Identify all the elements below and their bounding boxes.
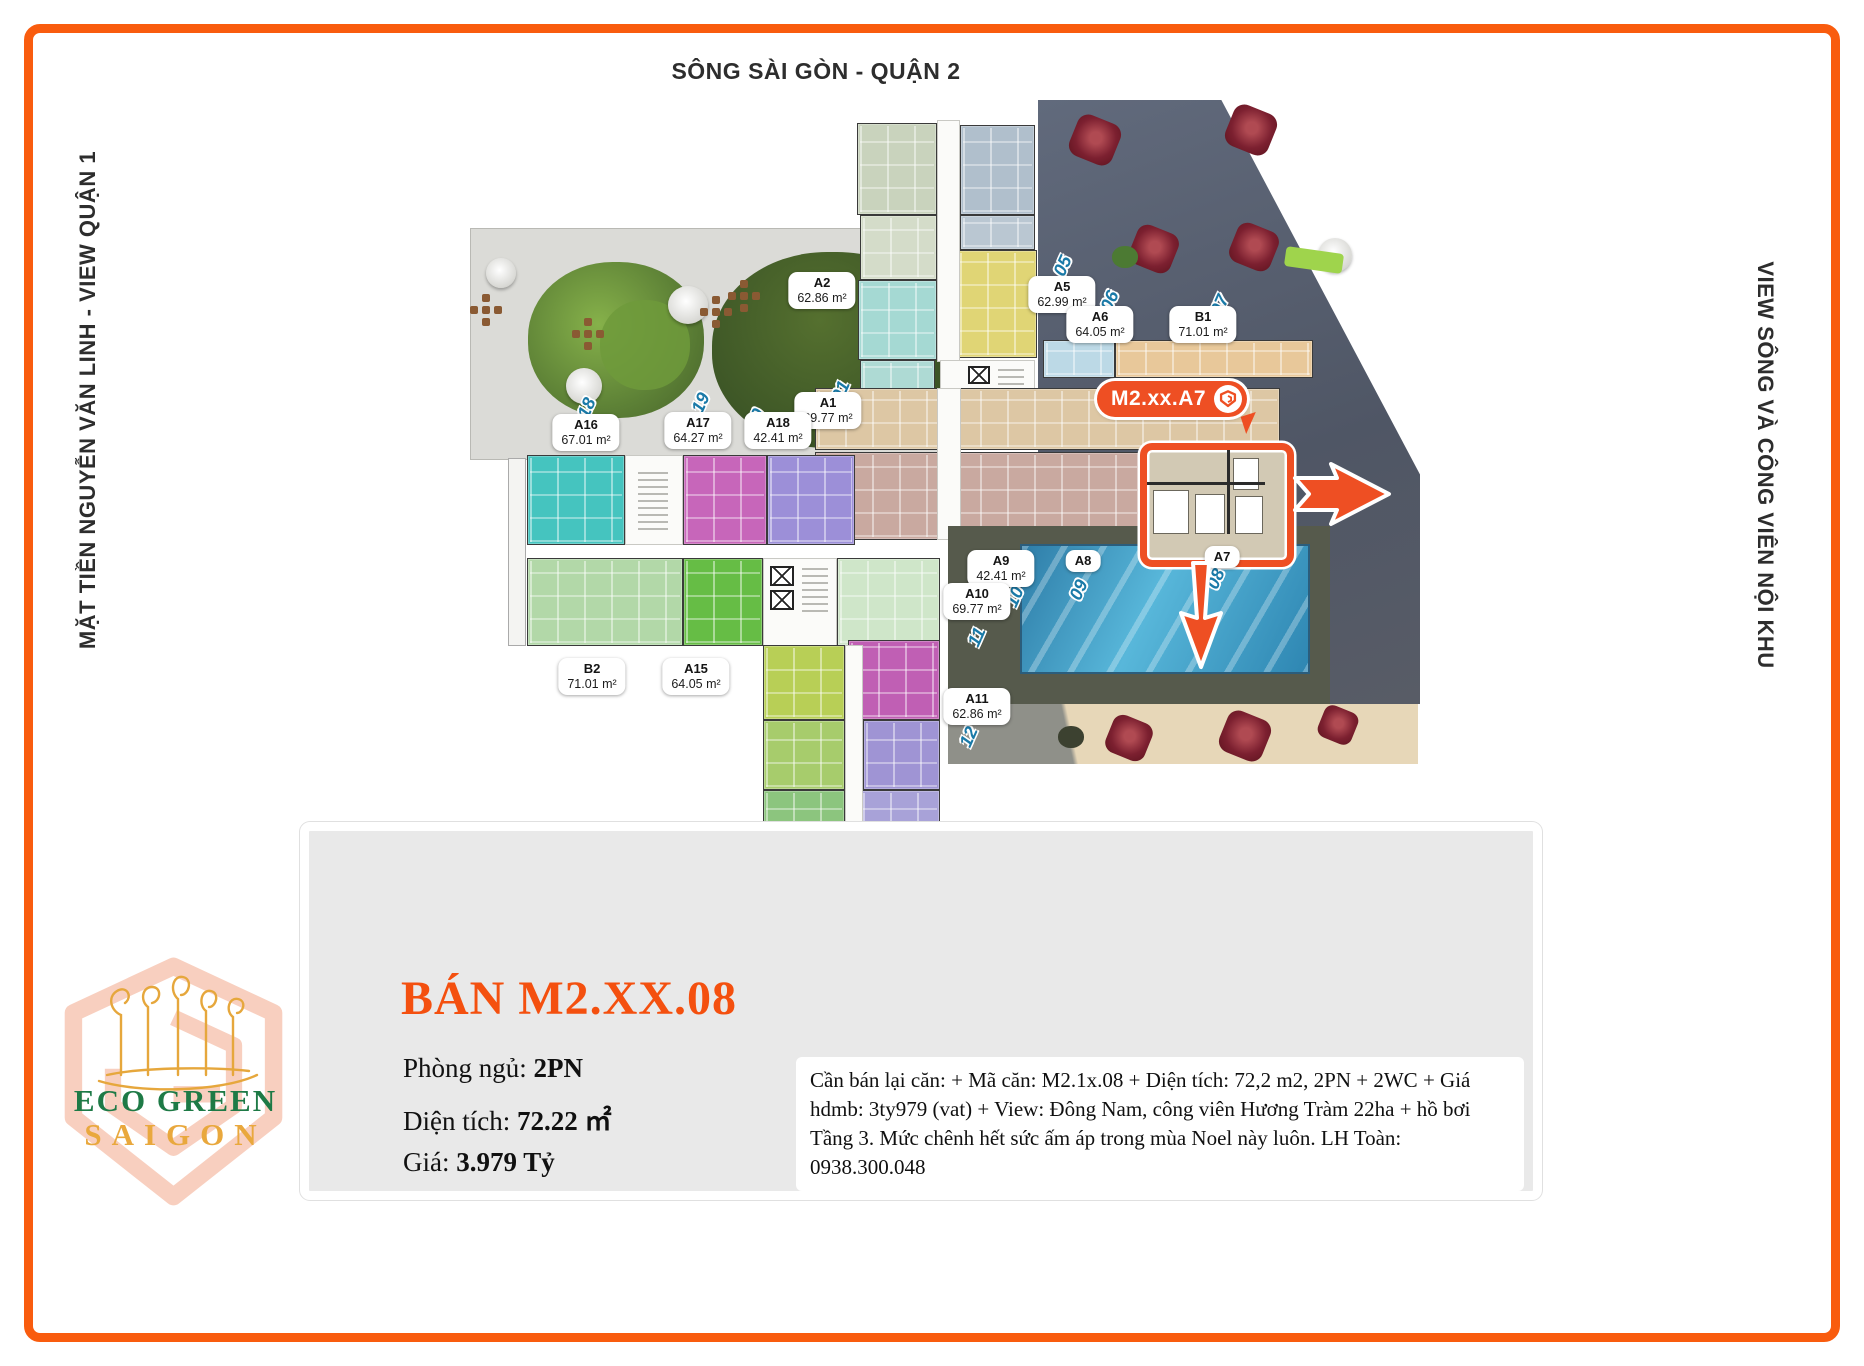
unit-block	[1115, 340, 1313, 378]
listing-panel: BÁN M2.XX.08 Phòng ngủ: 2PN Diện tích: 7…	[300, 822, 1542, 1200]
unit-bubble: A664.05 m²	[1066, 306, 1133, 343]
bedrooms-label: Phòng ngủ:	[403, 1053, 527, 1083]
unit-bubble: A1667.01 m²	[552, 414, 619, 451]
unit-bubble: A8	[1066, 550, 1101, 572]
flyer-page: SÔNG SÀI GÒN - QUẬN 2 MẶT TIỀN NGUYỄN VĂ…	[0, 0, 1864, 1366]
logo-text-line1: ECO GREEN	[74, 1083, 277, 1119]
unit-block	[863, 720, 940, 790]
listing-description: Cần bán lại căn: + Mã căn: M2.1x.08 + Di…	[796, 1057, 1524, 1191]
corridor	[937, 120, 960, 362]
unit-block	[960, 215, 1035, 250]
unit-block	[763, 645, 845, 720]
unit-block	[683, 455, 767, 545]
arrow-down-icon	[1173, 560, 1233, 672]
picnic-table-icon	[740, 292, 748, 300]
stairs-icon	[638, 470, 668, 530]
plant-icon	[1058, 726, 1084, 748]
unit-bubble: A262.86 m²	[788, 272, 855, 309]
unit-block	[858, 280, 937, 360]
price-value: 3.979 Tỷ	[456, 1147, 555, 1177]
white-umbrella-icon	[486, 258, 516, 288]
callout-label: M2.xx.A7	[1111, 387, 1206, 411]
logo-text-line2: SAIGON	[84, 1117, 266, 1153]
unit-block	[683, 558, 763, 646]
unit-block	[1043, 340, 1115, 378]
unit-bubble: A1564.05 m²	[662, 658, 729, 695]
listing-title: BÁN M2.XX.08	[401, 971, 737, 1026]
area-line: Diện tích: 72.22 ㎡	[403, 1099, 611, 1138]
unit-bubble: A1842.41 m²	[744, 412, 811, 449]
unit-block	[857, 123, 937, 215]
eco-green-logo: ECO GREEN SAIGON	[48, 955, 303, 1215]
elevator-icon	[770, 590, 794, 610]
unit-bubble: A1162.86 m²	[943, 688, 1010, 725]
label-river-north: SÔNG SÀI GÒN - QUẬN 2	[671, 58, 960, 85]
elevator-icon	[770, 566, 794, 586]
bedrooms-line: Phòng ngủ: 2PN	[403, 1053, 583, 1084]
white-umbrella-icon	[668, 286, 708, 324]
unit-block	[957, 250, 1037, 358]
area-value: 72.22 ㎡	[517, 1106, 612, 1136]
unit-block	[767, 455, 855, 545]
picnic-table-icon	[584, 330, 592, 338]
corridor	[937, 388, 961, 540]
unit-bubble: A1069.77 m²	[943, 583, 1010, 620]
unit-bubble: A1764.27 m²	[664, 412, 731, 449]
unit-block	[763, 720, 845, 790]
unit-block	[837, 558, 940, 646]
logo-trees-icon	[93, 971, 263, 1093]
unit-bubble: B171.01 m²	[1169, 306, 1236, 343]
label-street-west: MẶT TIỀN NGUYỄN VĂN LINH - VIEW QUẬN 1	[75, 151, 101, 649]
picnic-table-icon	[712, 308, 720, 316]
unit-bubble: A942.41 m²	[967, 550, 1034, 587]
price-label: Giá:	[403, 1147, 450, 1177]
unit-callout: M2.xx.A7	[1097, 381, 1247, 417]
brand-logo-icon	[1214, 385, 1242, 413]
unit-block	[960, 125, 1035, 215]
unit-block	[860, 215, 937, 280]
plant-icon	[1112, 246, 1138, 268]
unit-block	[527, 558, 683, 646]
elevator-icon	[968, 366, 990, 384]
arrow-right-icon	[1291, 458, 1395, 530]
unit-block	[527, 455, 625, 545]
picnic-table-icon	[482, 306, 490, 314]
price-line: Giá: 3.979 Tỷ	[403, 1147, 555, 1178]
stairs-icon	[802, 568, 828, 612]
label-view-east: VIEW SÔNG VÀ CÔNG VIÊN NỘI KHU	[1752, 261, 1778, 668]
area-label: Diện tích:	[403, 1106, 510, 1136]
bedrooms-value: 2PN	[534, 1053, 584, 1083]
unit-bubble: B271.01 m²	[558, 658, 625, 695]
balcony-strip	[508, 458, 526, 646]
